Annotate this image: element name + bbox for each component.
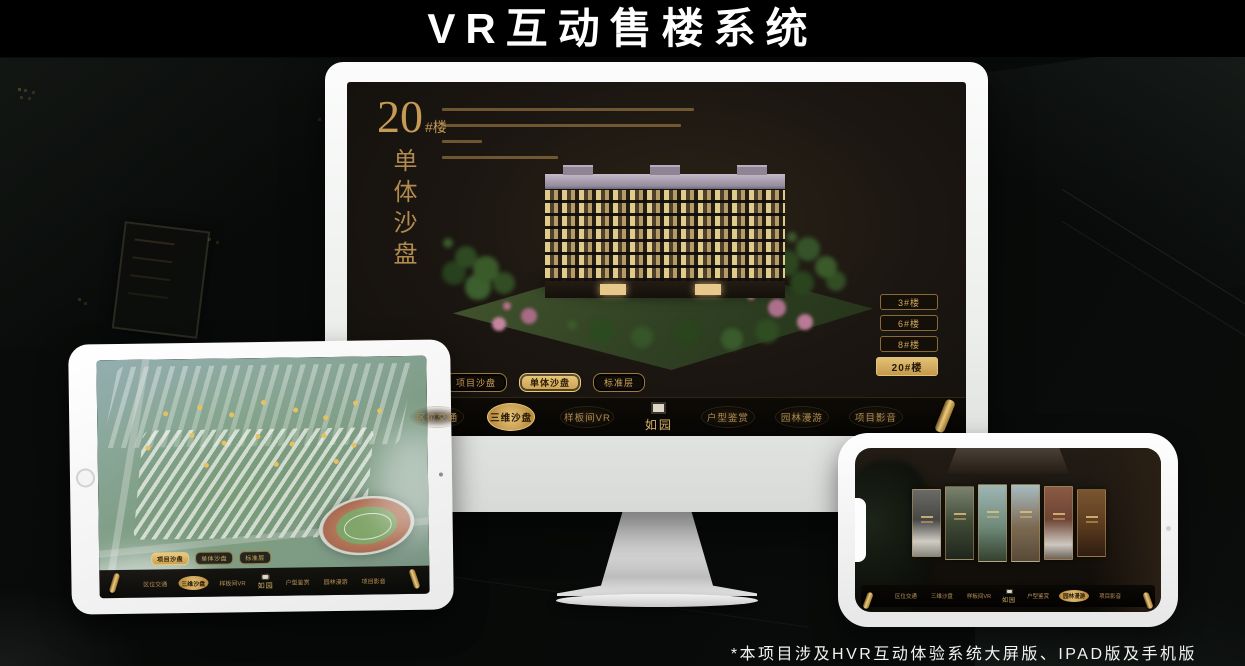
- phone-nav-item-3d-sandbox[interactable]: 三维沙盘: [928, 590, 956, 602]
- tablet-brand-logo-text: 如园: [258, 580, 274, 590]
- phone-nav-item-project-video[interactable]: 项目影音: [1096, 590, 1124, 602]
- tablet: 项目沙盘 单体沙盘 标准层 区位交通 三维沙盘 样板间VR 如园 户型鉴赏 园林…: [68, 339, 454, 614]
- building-ground-floor: [545, 281, 785, 298]
- entrance-light: [600, 284, 626, 295]
- building-facade: [545, 189, 785, 281]
- view-tab-single-sandbox[interactable]: 单体沙盘: [519, 373, 581, 392]
- tablet-nav-item-project-video[interactable]: 项目影音: [360, 574, 388, 587]
- building-marker-dots: [163, 411, 168, 416]
- bg-map-dots: [18, 88, 21, 91]
- tablet-view-tab-project-sandbox[interactable]: 项目沙盘: [151, 552, 189, 566]
- brand-logo: 如园: [645, 402, 673, 433]
- nav-item-showroom-vr[interactable]: 样板间VR: [562, 406, 613, 428]
- tree-cluster: [787, 232, 797, 242]
- model-scene: [447, 152, 877, 387]
- nav-item-location[interactable]: 区位交通: [414, 406, 460, 428]
- phone-brand-logo: 如园: [1002, 589, 1016, 604]
- phone-screen: 区位交通 三维沙盘 样板间VR 如园 户型鉴赏 园林漫游 项目影音: [855, 448, 1161, 612]
- seal-icon: [262, 573, 270, 579]
- phone-nav-item-garden-roam[interactable]: 园林漫游: [1060, 590, 1088, 602]
- poster: VR互动售楼系统 20#楼 单体沙盘: [0, 0, 1245, 666]
- tablet-view-tab-standard-floor[interactable]: 标准层: [239, 551, 271, 564]
- monitor-base: [556, 594, 758, 607]
- tablet-brand-logo: 如园: [258, 573, 274, 590]
- tablet-view-tab-group: 项目沙盘 单体沙盘 标准层: [151, 551, 271, 566]
- headline-number: 20: [377, 91, 423, 142]
- roof-dormer: [650, 165, 680, 175]
- building-roof: [545, 174, 785, 189]
- tablet-nav-item-3d-sandbox[interactable]: 三维沙盘: [179, 576, 207, 589]
- phone: 区位交通 三维沙盘 样板间VR 如园 户型鉴赏 园林漫游 项目影音: [838, 433, 1178, 627]
- gallery-panels: [911, 478, 1107, 568]
- home-button[interactable]: [76, 468, 95, 487]
- nav-item-garden-roam[interactable]: 园林漫游: [779, 406, 825, 428]
- tablet-screen: 项目沙盘 单体沙盘 标准层 区位交通 三维沙盘 样板间VR 如园 户型鉴赏 园林…: [96, 356, 429, 599]
- phone-nav-item-showroom-vr[interactable]: 样板间VR: [964, 590, 994, 602]
- roof-dormer: [737, 165, 767, 175]
- tablet-navbar: 区位交通 三维沙盘 样板间VR 如园 户型鉴赏 园林漫游 项目影音: [99, 566, 429, 599]
- building-headline: 20#楼 单体沙盘: [377, 94, 447, 298]
- camera-dot: [1166, 526, 1171, 531]
- tablet-nav-item-unit-plans[interactable]: 户型鉴赏: [284, 575, 312, 588]
- gallery-panel[interactable]: [912, 489, 941, 557]
- tablet-nav-item-garden-roam[interactable]: 园林漫游: [322, 574, 350, 587]
- floor-button-group: 3#楼 6#楼 8#楼 20#楼: [876, 294, 938, 376]
- gallery-panel[interactable]: [978, 484, 1007, 562]
- phone-nav-item-unit-plans[interactable]: 户型鉴赏: [1024, 590, 1052, 602]
- tree-cluster: [443, 238, 453, 248]
- floor-button-3[interactable]: 3#楼: [880, 294, 938, 310]
- phone-navbar: 区位交通 三维沙盘 样板间VR 如园 户型鉴赏 园林漫游 项目影音: [861, 585, 1155, 607]
- phone-nav-item-location[interactable]: 区位交通: [892, 590, 920, 602]
- title-bar: VR互动售楼系统: [0, 0, 1245, 57]
- nav-item-unit-plans[interactable]: 户型鉴赏: [705, 406, 751, 428]
- floor-button-20[interactable]: 20#楼: [876, 357, 938, 376]
- tablet-nav-item-location[interactable]: 区位交通: [141, 577, 169, 590]
- tree-cluster: [567, 320, 577, 330]
- seal-icon: [651, 402, 666, 414]
- headline-vertical: 单体沙盘: [385, 148, 420, 298]
- view-tab-group: 项目沙盘 单体沙盘 标准层: [445, 373, 645, 392]
- tablet-view-tab-single-sandbox[interactable]: 单体沙盘: [195, 551, 233, 565]
- building-model[interactable]: [545, 174, 785, 298]
- view-tab-project-sandbox[interactable]: 项目沙盘: [445, 373, 507, 392]
- gallery-panel[interactable]: [1044, 486, 1073, 560]
- camera-dot: [439, 472, 443, 476]
- nav-item-project-video[interactable]: 项目影音: [853, 406, 899, 428]
- monitor-stand: [557, 510, 757, 596]
- gallery-panel[interactable]: [945, 486, 974, 560]
- view-tab-standard-floor[interactable]: 标准层: [593, 373, 645, 392]
- seal-icon: [1006, 589, 1013, 594]
- notch: [855, 498, 866, 562]
- entrance-light: [695, 284, 721, 295]
- floor-button-6[interactable]: 6#楼: [880, 315, 938, 331]
- phone-brand-logo-text: 如园: [1002, 595, 1016, 604]
- bg-framed-photo: [112, 221, 211, 339]
- floor-button-8[interactable]: 8#楼: [880, 336, 938, 352]
- flower-cluster: [503, 302, 511, 310]
- gallery-panel[interactable]: [1011, 484, 1040, 562]
- nav-item-3d-sandbox[interactable]: 三维沙盘: [488, 406, 534, 428]
- footnote: *本项目涉及HVR互动体验系统大屏版、IPAD版及手机版: [731, 640, 1197, 664]
- tablet-nav-item-showroom-vr[interactable]: 样板间VR: [217, 576, 248, 589]
- roof-dormer: [563, 165, 593, 175]
- brand-logo-text: 如园: [645, 416, 673, 433]
- gallery-panel[interactable]: [1077, 489, 1106, 557]
- ceiling-beam: [947, 448, 1069, 474]
- page-title: VR互动售楼系统: [427, 8, 817, 50]
